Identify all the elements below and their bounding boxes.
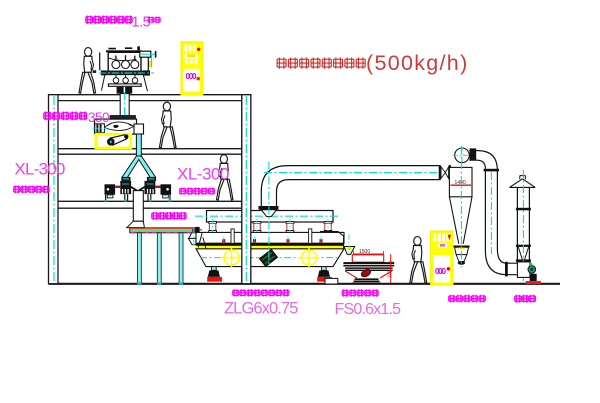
svg-text:1.5: 1.5	[132, 15, 151, 31]
svg-text:1500: 1500	[359, 249, 370, 255]
svg-text:350: 350	[88, 110, 109, 125]
svg-text:345: 345	[388, 269, 394, 278]
svg-text:1400: 1400	[455, 180, 466, 186]
svg-text:XL-300: XL-300	[15, 160, 65, 179]
svg-text:(500kg/h): (500kg/h)	[366, 51, 469, 75]
svg-text:ZLG6x0.75: ZLG6x0.75	[224, 300, 298, 318]
svg-text:XL-300: XL-300	[177, 165, 229, 184]
svg-text:FS0.6x1.5: FS0.6x1.5	[335, 301, 402, 318]
